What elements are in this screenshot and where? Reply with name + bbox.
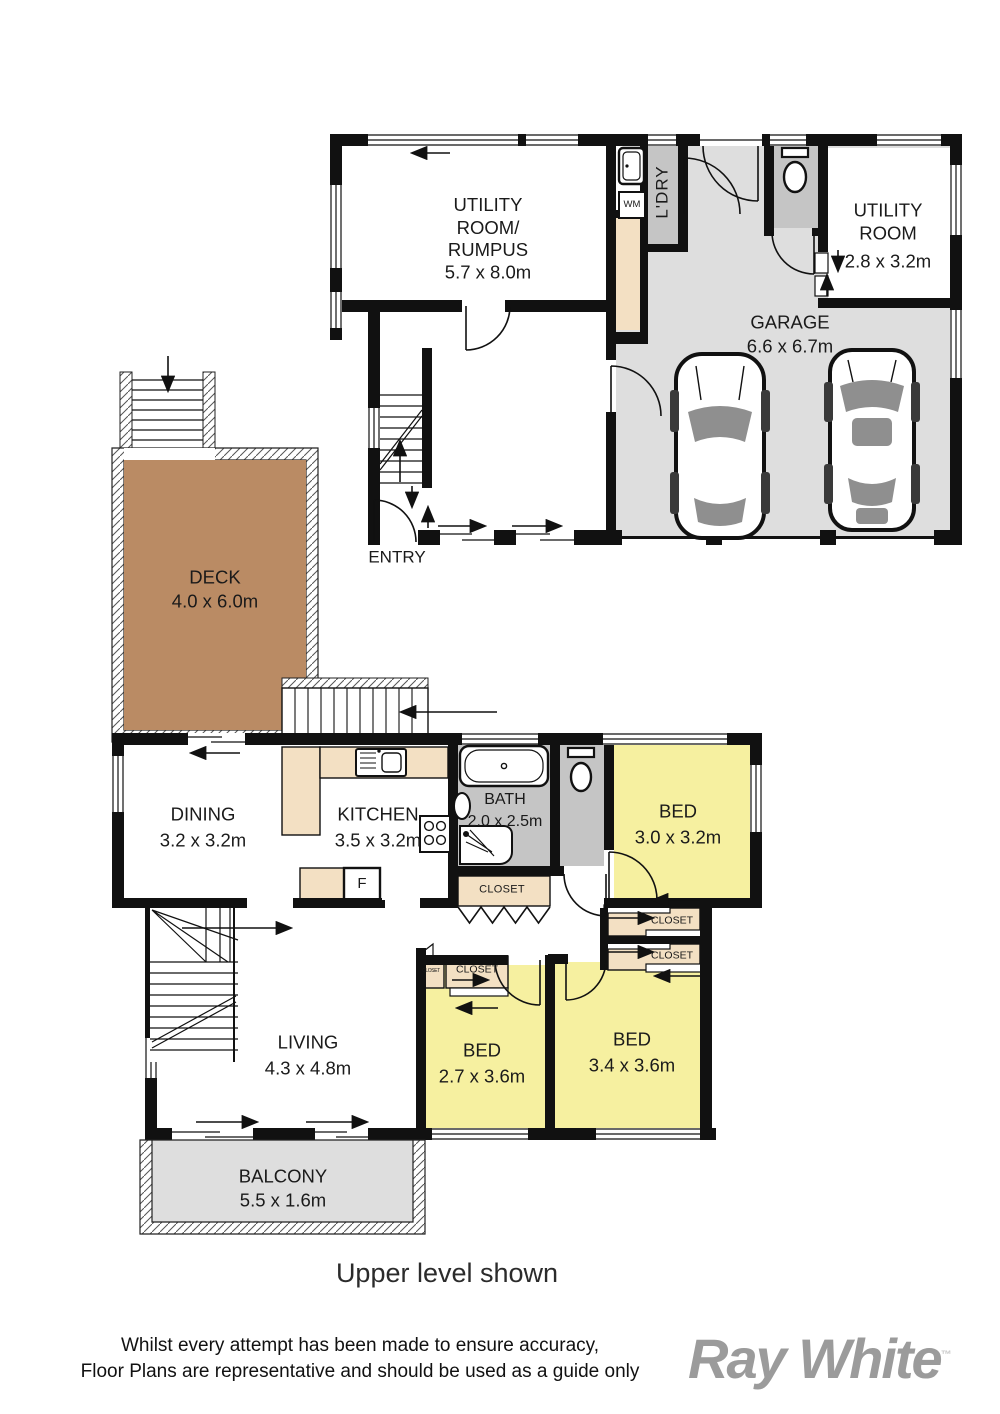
living-stairs: [150, 908, 238, 1062]
room-dims-bed1: 3.0 x 3.2m: [635, 827, 721, 850]
entry-door: [374, 500, 416, 542]
closet-label-hall-top: CLOSET: [651, 915, 693, 928]
room-dims-bed2: 2.7 x 3.6m: [439, 1066, 525, 1089]
room-label-utility-rumpus: UTILITY ROOM/ RUMPUS: [448, 194, 528, 262]
utility-slider-panel: [815, 253, 828, 273]
room-label-garage: GARAGE: [750, 312, 829, 335]
ray-white-logo: Ray White™: [688, 1326, 988, 1391]
closet-bifold-doors: [458, 907, 550, 923]
upper-level-plan: [330, 134, 962, 545]
fridge-label: F: [357, 875, 366, 893]
room-dims-garage: 6.6 x 6.7m: [747, 336, 833, 359]
closet-slider-track: [646, 964, 704, 972]
toilet-icon: [568, 748, 594, 791]
room-label-balcony: BALCONY: [239, 1166, 327, 1189]
toilet-icon: [782, 148, 808, 192]
disclaimer-line1: Whilst every attempt has been made to en…: [121, 1335, 599, 1356]
trademark-symbol: ™: [941, 1349, 952, 1361]
ray-white-wordmark: Ray White: [688, 1327, 941, 1390]
room-label-laundry: L'DRY: [653, 165, 674, 218]
washing-machine-label: WM: [624, 199, 641, 211]
floorplan-page: UTILITY ROOM/ RUMPUS 5.7 x 8.0m L'DRY WM…: [0, 0, 1000, 1414]
room-dims-kitchen: 3.5 x 3.2m: [335, 830, 421, 853]
room-dims-living: 4.3 x 4.8m: [265, 1058, 351, 1081]
room-label-deck: DECK: [189, 567, 240, 590]
room-dims-utility: 2.8 x 3.2m: [845, 251, 931, 274]
room-dims-bath: 2.0 x 2.5m: [468, 812, 543, 832]
disclaimer-text: Whilst every attempt has been made to en…: [40, 1333, 680, 1385]
disclaimer-line2: Floor Plans are representative and shoul…: [81, 1361, 640, 1382]
rumpus-door: [466, 306, 510, 350]
kitchen-counter: [282, 747, 320, 835]
room-label-dining: DINING: [171, 804, 236, 827]
closet-label-bed2-small: CLOSET: [422, 968, 440, 974]
room-dims-utility-rumpus: 5.7 x 8.0m: [445, 262, 531, 285]
mid-stairs: [282, 678, 428, 736]
room-label-utility: UTILITY ROOM: [854, 199, 923, 244]
room-dims-bed3: 3.4 x 3.6m: [589, 1055, 675, 1078]
car-icon: [670, 354, 770, 538]
level-caption: Upper level shown: [247, 1258, 647, 1289]
room-label-bed2: BED: [463, 1040, 501, 1063]
closet-label-bath: CLOSET: [479, 883, 525, 896]
room-label-bed3: BED: [613, 1029, 651, 1052]
room-dims-dining: 3.2 x 3.2m: [160, 830, 246, 853]
room-label-bath: BATH: [484, 790, 525, 810]
utility-slider-panel: [815, 276, 828, 296]
entry-stairs: [380, 395, 422, 483]
closet-slider-track: [450, 988, 508, 996]
hall-cabinet-strip: [616, 218, 640, 330]
room-dims-deck: 4.0 x 6.0m: [172, 591, 258, 614]
closet-label-hall-bottom: CLOSET: [651, 950, 693, 963]
closet-label-bed2: CLOSET: [456, 964, 498, 977]
stove-icon: [420, 816, 450, 852]
kitchen-island: [300, 868, 344, 900]
deck-stair-opening: [124, 448, 215, 460]
room-dims-balcony: 5.5 x 1.6m: [240, 1190, 326, 1213]
room-label-entry: ENTRY: [368, 548, 425, 569]
room-label-kitchen: KITCHEN: [337, 804, 418, 827]
wc2-door: [564, 874, 606, 916]
room-label-living: LIVING: [278, 1032, 339, 1055]
car-icon: [824, 350, 920, 530]
room-label-bed1: BED: [659, 801, 697, 824]
laundry-tub-drain: [625, 164, 628, 167]
